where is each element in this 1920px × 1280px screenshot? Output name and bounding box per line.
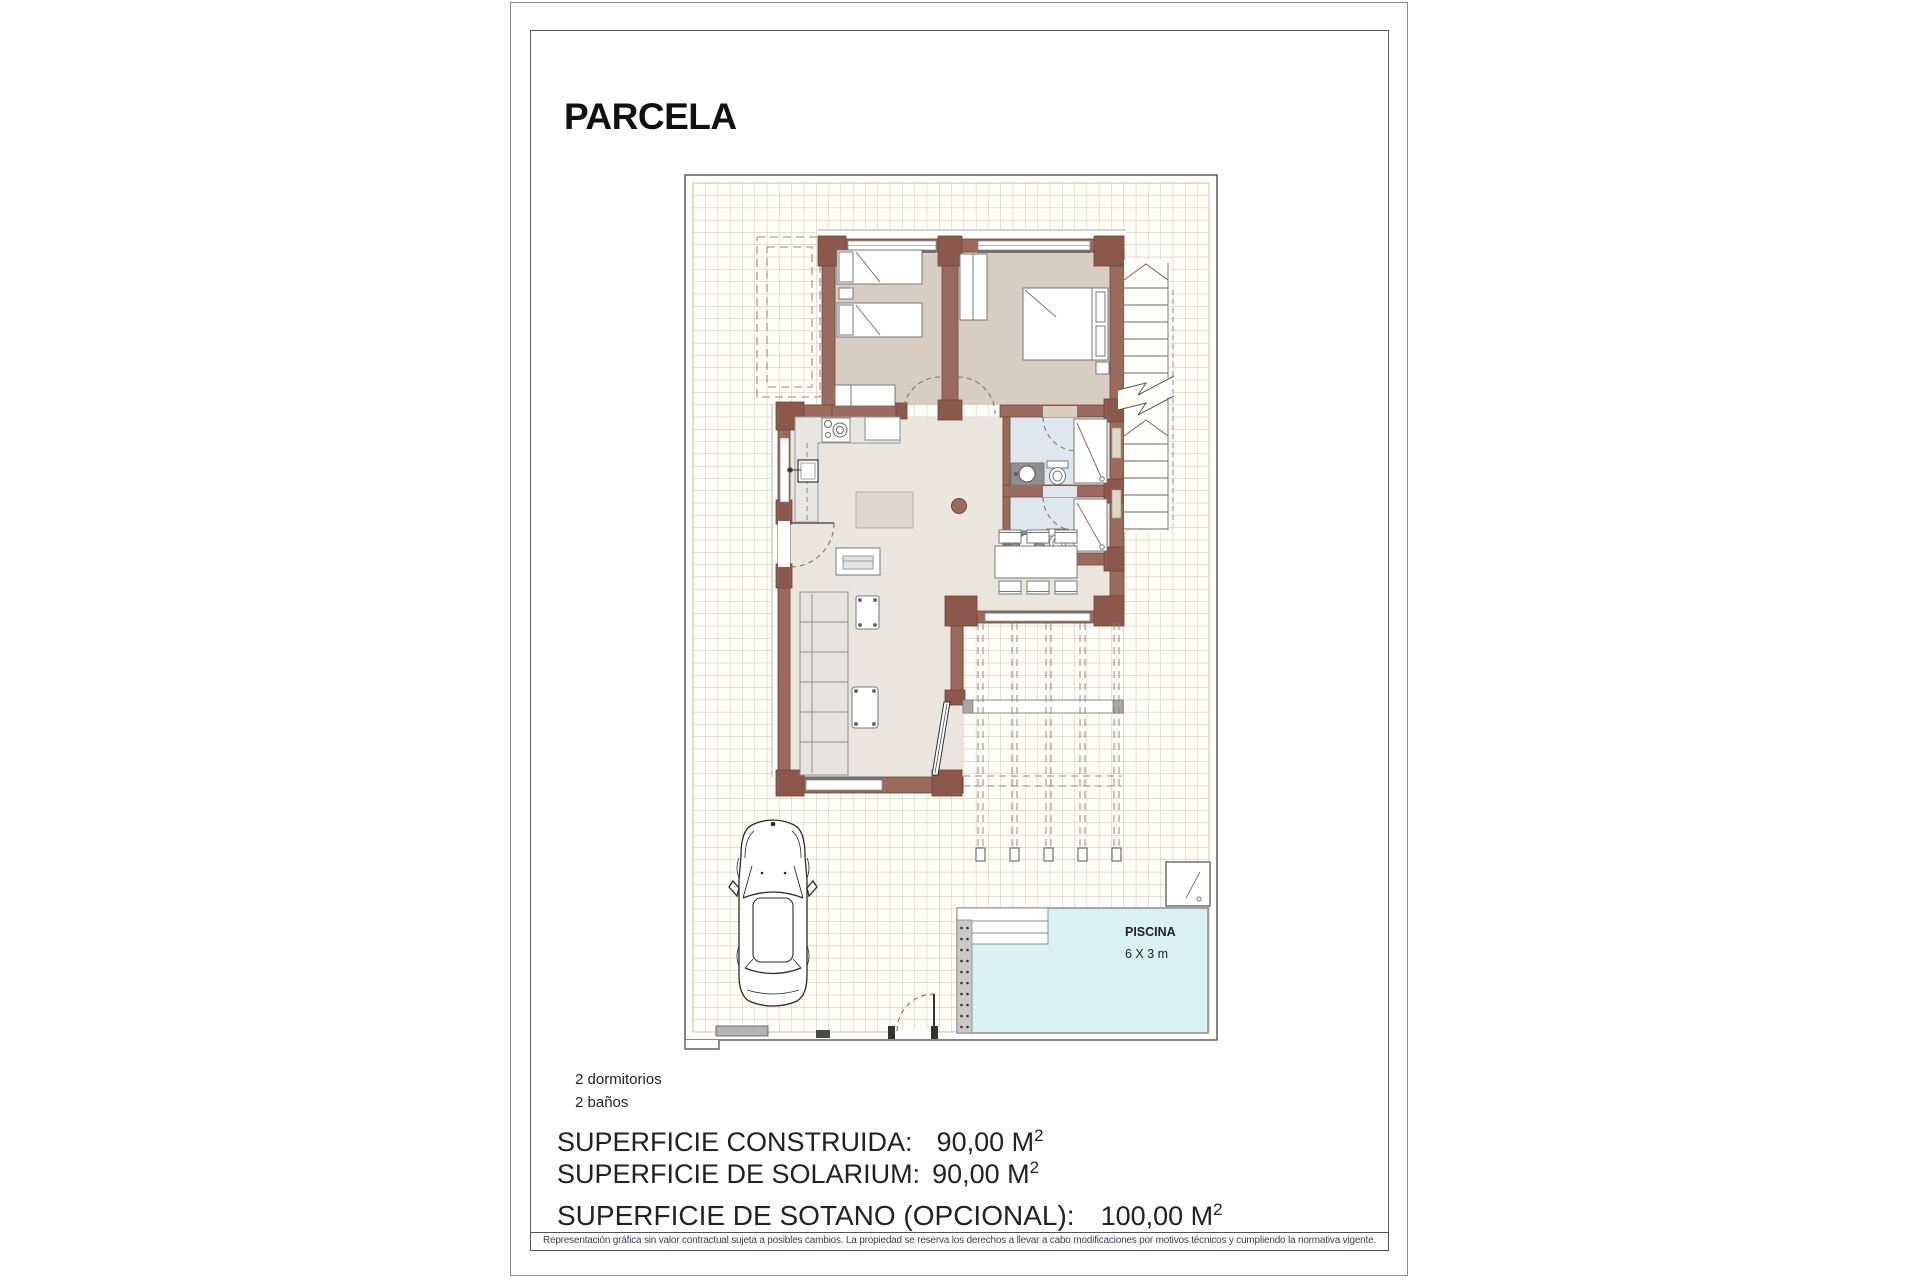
area-solarium-sup: 2 <box>1030 1158 1039 1177</box>
car <box>729 820 817 1006</box>
shower-1 <box>1074 419 1107 483</box>
pool-step <box>970 933 1048 944</box>
rug <box>856 492 913 528</box>
exterior-stairs <box>1118 260 1174 532</box>
pool-step <box>957 908 1048 921</box>
bathroom-1-door-gap <box>1043 406 1077 417</box>
sofa <box>800 592 848 775</box>
west-door-gap <box>778 521 790 567</box>
gate-post-left <box>888 1026 895 1039</box>
area-basement: SUPERFICIE DE SOTANO (OPCIONAL): 100,00 … <box>557 1200 1223 1232</box>
area-basement-label: SUPERFICIE DE SOTANO (OPCIONAL): <box>557 1200 1075 1232</box>
sheet: PISCINA 6 X 3 m PARCELA 2 dormitorios 2 … <box>0 0 1920 1280</box>
bathroom-2-door-gap <box>1043 486 1077 497</box>
driveway-step <box>685 1040 719 1049</box>
kitchen-unit <box>865 417 900 440</box>
fence-post <box>816 1030 830 1038</box>
bathrooms-note: 2 baños <box>575 1091 662 1114</box>
area-built: SUPERFICIE CONSTRUIDA: 90,00 M2 <box>557 1127 1044 1158</box>
area-built-label: SUPERFICIE CONSTRUIDA: <box>557 1127 913 1158</box>
pool-size-label: 6 X 3 m <box>1125 947 1168 961</box>
pool-edge-strip <box>957 920 972 1033</box>
pool-label: PISCINA <box>1125 925 1176 939</box>
dining-table <box>995 546 1077 578</box>
roof <box>753 898 793 962</box>
dresser <box>835 385 895 406</box>
outdoor-shower <box>1166 862 1210 906</box>
page-title: PARCELA <box>564 96 737 138</box>
coffee-table <box>852 687 878 728</box>
roof-overhang-north <box>818 230 1126 239</box>
nightstand <box>1096 362 1109 374</box>
area-solarium-label: SUPERFICIE DE SOLARIUM: <box>557 1159 920 1190</box>
area-basement-sup: 2 <box>1213 1200 1222 1219</box>
floor-plan-drawing: PISCINA 6 X 3 m <box>0 0 1920 1280</box>
nightstand <box>839 288 853 299</box>
gate-opening <box>895 1029 931 1038</box>
area-built-value: 90,00 M <box>937 1127 1035 1157</box>
features-note: 2 dormitorios 2 baños <box>575 1068 662 1114</box>
area-basement-value: 100,00 M <box>1101 1201 1214 1231</box>
column <box>952 499 967 514</box>
area-solarium-value: 90,00 M <box>932 1159 1030 1189</box>
pool-step <box>970 921 1048 933</box>
toilet-tank-1 <box>1047 461 1068 468</box>
bedrooms-note: 2 dormitorios <box>575 1068 662 1091</box>
area-built-sup: 2 <box>1034 1126 1043 1145</box>
sliding-gate <box>716 1026 768 1036</box>
area-solarium: SUPERFICIE DE SOLARIUM: 90,00 M2 <box>557 1159 1039 1190</box>
legal-disclaimer: Representación gráfica sin valor contrac… <box>530 1232 1389 1251</box>
